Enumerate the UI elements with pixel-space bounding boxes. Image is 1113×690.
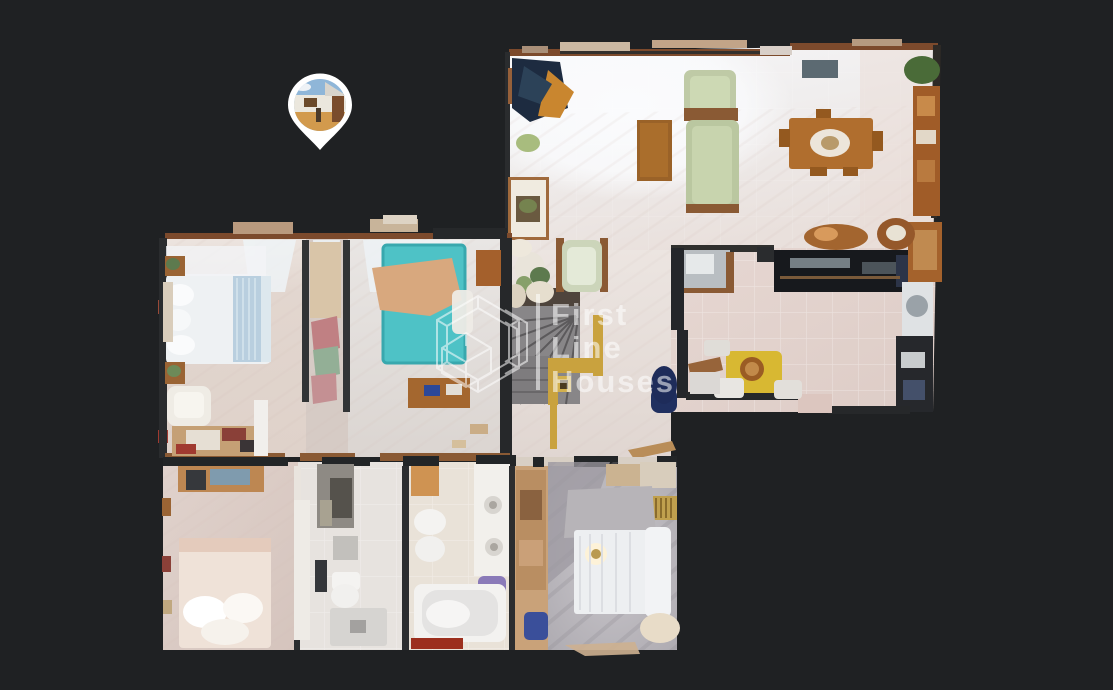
- svg-text:First: First: [551, 297, 628, 332]
- svg-text:Houses: Houses: [551, 364, 675, 399]
- svg-text:Line: Line: [551, 330, 623, 365]
